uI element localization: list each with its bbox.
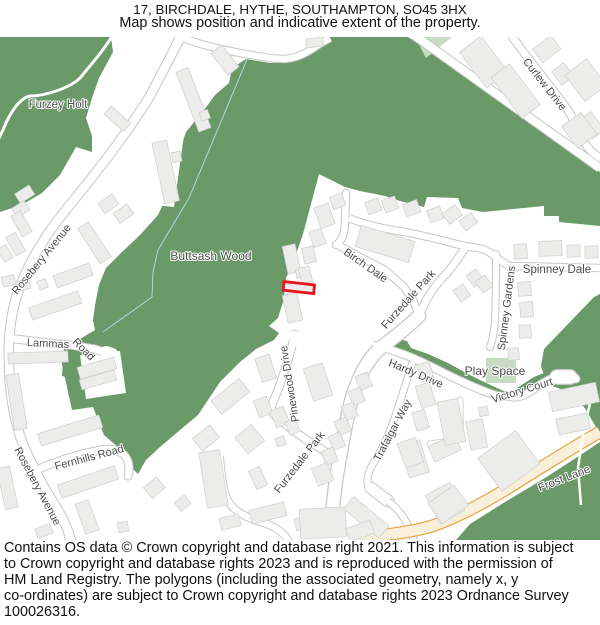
- svg-text:Furzey Holt: Furzey Holt: [29, 99, 89, 111]
- svg-text:Spinney Dale: Spinney Dale: [523, 264, 591, 276]
- svg-text:Buttsash Wood: Buttsash Wood: [170, 249, 251, 263]
- svg-text:Lammas: Lammas: [27, 337, 70, 351]
- svg-text:Play Space: Play Space: [465, 364, 526, 378]
